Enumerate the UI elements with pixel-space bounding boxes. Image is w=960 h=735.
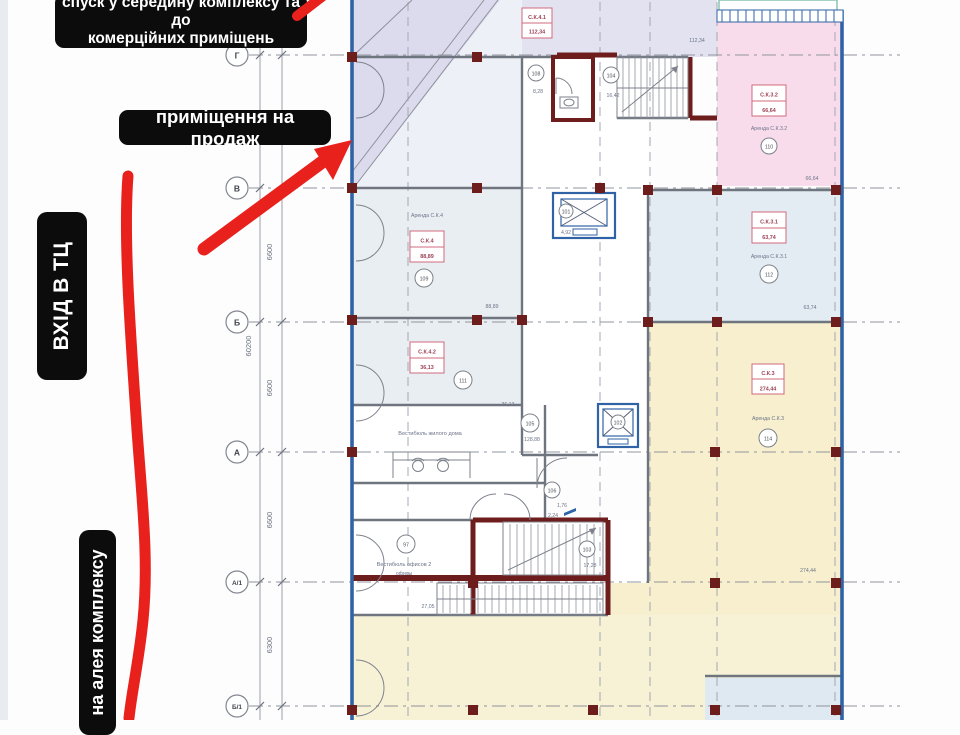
dim-a-a1: 6600 [265, 512, 274, 529]
lobby-residential-label: Вестибюль жилого дома [398, 431, 462, 437]
mall-entrance-annotation: ВХІД В ТЦ [37, 212, 87, 380]
room-k3-area: 274,44 [760, 387, 777, 393]
area-wc: 8,28 [533, 89, 543, 95]
room-k31-fill [648, 190, 843, 322]
room-k4-lease: Аренда С.К.4 [411, 213, 443, 219]
corner-k3: 274,44 [800, 568, 816, 574]
area-a2: 2,24 [548, 513, 558, 519]
corner-k32: 66,64 [806, 176, 819, 182]
room-k42-area: 36,13 [420, 365, 434, 371]
tag-office: 97 [403, 543, 409, 549]
room-k41-id: С.К.4.1 [528, 15, 546, 21]
room-k4-area: 88,89 [420, 254, 434, 260]
tag-corridor: 105 [526, 422, 535, 428]
area-corridor: 128,88 [524, 437, 540, 443]
dim-total: 60200 [244, 336, 253, 357]
room-k41-area: 112,34 [529, 30, 545, 36]
room-k4-tag: 109 [420, 277, 429, 283]
room-k32-id: С.К.3.2 [760, 93, 778, 99]
axis-a1: А/1 [232, 580, 243, 587]
corner-k42: 36,13 [502, 402, 515, 408]
screenshot: 6600 6600 6600 6600 6300 60200 Г В Б А А… [0, 0, 960, 720]
section-mark [564, 508, 576, 516]
sale-annotation: приміщення на продаж [119, 110, 331, 145]
area-landing: 16,42 [607, 93, 620, 99]
tag-wc: 108 [532, 72, 541, 78]
tag-landing: 104 [607, 74, 616, 80]
room-k31-id: С.К.3.1 [760, 220, 778, 226]
room-k42-tag: 111 [459, 379, 467, 385]
dim-v-b: 6600 [265, 244, 274, 261]
dim-b-a: 6600 [265, 380, 274, 397]
room-k32-lease: Аренда С.К.3.2 [751, 126, 787, 132]
axis-b1: Б/1 [232, 704, 242, 711]
room-k3-id: С.К.3 [761, 371, 774, 377]
tag-lift2: 102 [614, 421, 623, 427]
tag-stair: 103 [583, 548, 592, 554]
room-k31-area: 63,74 [762, 235, 776, 241]
corner-k31: 63,74 [804, 305, 817, 311]
axis-g: Г [235, 51, 240, 61]
area-lobby: 27,05 [422, 604, 435, 610]
alley-label: на алея комплексу [87, 549, 108, 715]
alley-annotation: на алея комплексу [79, 530, 116, 735]
lobby-offices-label2: офисы [396, 571, 413, 577]
room-k3-lease: Аренда С.К.3 [752, 416, 784, 422]
room-k31-lease: Аренда С.К.3.1 [751, 254, 787, 260]
area-a1: 1,76 [557, 503, 567, 509]
tag-hall: 106 [548, 489, 557, 495]
dim-a1-b1: 6300 [265, 637, 274, 654]
room-k31-tag: 112 [765, 273, 773, 279]
descent-line1: спуск у середину комплексу та до [59, 0, 303, 30]
room-k4-id: С.К.4 [420, 239, 433, 245]
room-k42-id: С.К.4.2 [418, 350, 436, 356]
room-k32-area: 66,64 [762, 108, 776, 114]
descent-annotation: спуск у середину комплексу та до комерці… [55, 0, 307, 48]
lobby-offices-label: Вестибюль офисов 2 [377, 562, 432, 568]
axis-b: Б [234, 318, 240, 328]
corner-k4: 88,89 [486, 304, 499, 310]
room-k32-tag: 110 [765, 145, 773, 151]
room-k3-tag: 114 [764, 437, 772, 443]
axis-a: А [234, 448, 240, 458]
mall-entrance-label: ВХІД В ТЦ [50, 242, 74, 351]
descent-line2: комерційних приміщень [88, 30, 274, 48]
tag-lift1: 101 [562, 210, 571, 216]
area-lift1: 4,92 [561, 230, 571, 236]
corner-k41: 112,34 [689, 38, 705, 44]
sale-label: приміщення на продаж [119, 106, 331, 149]
area-stair: 17,28 [584, 563, 597, 569]
axis-v: В [234, 184, 240, 194]
terrace-glazing [717, 0, 843, 22]
